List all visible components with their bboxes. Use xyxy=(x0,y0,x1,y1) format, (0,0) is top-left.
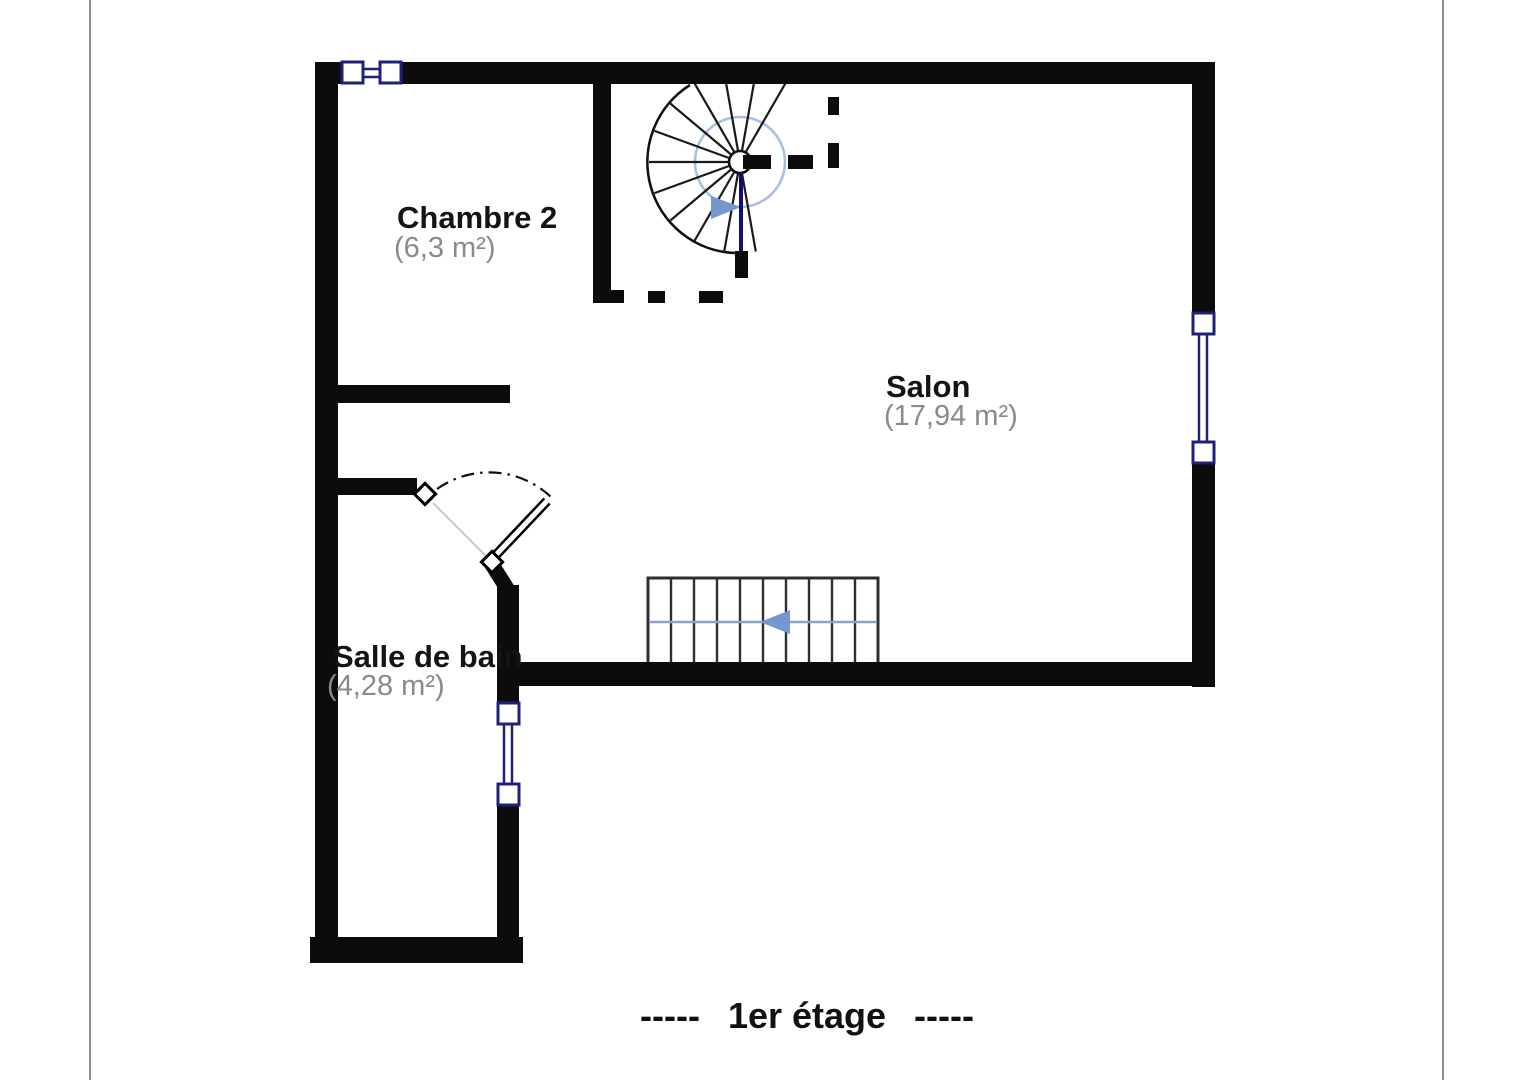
wall-bath-right-lower xyxy=(497,805,519,938)
door-swing-arc xyxy=(437,472,551,497)
spiral-staircase-icon xyxy=(647,72,785,278)
wall-right-upper xyxy=(1192,62,1215,313)
walls xyxy=(310,62,1215,963)
wall-chambre-right xyxy=(593,84,611,303)
door-hinge-post xyxy=(414,483,435,504)
room-area-salle-de-bain: (4,28 m²) xyxy=(327,672,445,701)
room-label-chambre2: Chambre 2 xyxy=(397,202,557,233)
wall-top xyxy=(401,62,1215,84)
caption-title: 1er étage xyxy=(728,995,886,1036)
floor-caption: -----1er étage----- xyxy=(626,995,988,1037)
window-top-wall-icon xyxy=(342,62,401,83)
wall-chambre-right-foot xyxy=(593,290,624,303)
wall-right-lower xyxy=(1192,464,1215,687)
room-label-salle-de-bain: Salle de bain xyxy=(333,641,523,672)
wall-bath-top-stub xyxy=(318,478,417,495)
window-bathroom-wall-icon xyxy=(498,703,519,805)
caption-dashes-right: ----- xyxy=(914,995,974,1036)
wall-salon-bottom xyxy=(505,662,1215,686)
wall-bath-bottom xyxy=(310,937,523,963)
straight-staircase-icon xyxy=(648,578,878,664)
spiral-direction-arrow-icon xyxy=(711,196,741,219)
caption-dashes-left: ----- xyxy=(640,995,700,1036)
wall-chambre-bottom-stub xyxy=(330,385,510,403)
door-swing-icon xyxy=(414,472,551,590)
floor-plan-canvas xyxy=(0,0,1516,1080)
window-right-wall-icon xyxy=(1193,313,1214,463)
room-area-salon: (17,94 m²) xyxy=(884,402,1018,431)
room-area-chambre2: (6,3 m²) xyxy=(394,234,496,263)
door-closed-line xyxy=(433,503,486,556)
wall-left xyxy=(315,62,338,963)
room-label-salon: Salon xyxy=(886,371,970,402)
floor-plan-page: Chambre 2 (6,3 m²) Salon (17,94 m²) Sall… xyxy=(0,0,1516,1080)
